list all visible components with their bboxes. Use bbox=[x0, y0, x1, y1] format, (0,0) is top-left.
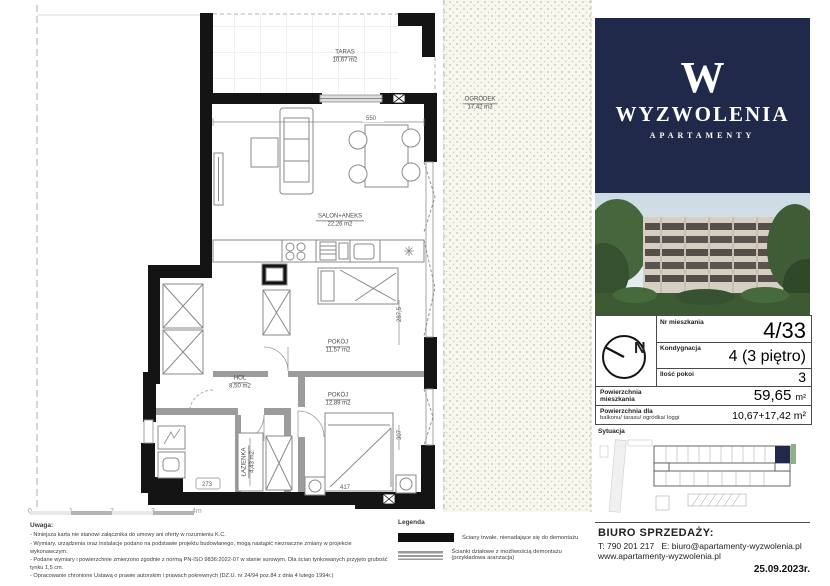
compass-icon bbox=[598, 330, 656, 384]
room-label-lazienka: ŁAZIENKA4,43 m2 bbox=[241, 445, 256, 478]
note-line: - Wymiary, urządzenia oraz instalacje po… bbox=[30, 540, 390, 556]
office-website[interactable]: www.apartamenty-wyzwolenia.pl bbox=[598, 551, 810, 561]
room-label-ogrodek: OGRÓDEK17,42 m2 bbox=[463, 96, 498, 111]
svg-text:287,5: 287,5 bbox=[397, 306, 403, 322]
area-label: Powierzchnia mieszkania bbox=[600, 389, 660, 404]
sales-office-block: BIURO SPRZEDAŻY: T: 790 201 217 E: biuro… bbox=[598, 527, 810, 561]
note-line: - Niniejsza karta nie stanowi załącznika… bbox=[30, 531, 390, 539]
office-phone: T: 790 201 217 bbox=[598, 541, 654, 551]
room-label-salon: SALON+ANEKS22,26 m2 bbox=[316, 213, 364, 228]
balcony-area-value: 10,67+17,42 m² bbox=[732, 410, 806, 422]
solid-wall-swatch bbox=[398, 533, 454, 542]
compass-north-letter: N bbox=[634, 340, 646, 358]
floor-value: 4 (3 piętro) bbox=[729, 348, 806, 366]
svg-text:273: 273 bbox=[202, 482, 213, 488]
hall-wardrobes bbox=[163, 284, 203, 374]
office-email[interactable]: E: biuro@apartamenty-wyzwolenia.pl bbox=[661, 541, 801, 551]
brand-panel: W WYZWOLENIA APARTAMENTY bbox=[595, 18, 810, 193]
floor-label: Kondygnacja bbox=[660, 345, 701, 352]
legend-item-solid: Ściany trwałe, nienadające się do demont… bbox=[398, 533, 593, 542]
brand-name: WYZWOLENIA bbox=[595, 102, 810, 127]
unit-number-value: 4/33 bbox=[763, 318, 806, 344]
legend-item-striped: Ścianki działowe z możliwością demontażu… bbox=[398, 549, 593, 561]
building-photo bbox=[595, 193, 810, 315]
legend-block: Legenda Ściany trwałe, nienadające się d… bbox=[398, 519, 593, 561]
room-label-hol: HOL8,50 m2 bbox=[229, 375, 251, 390]
room-label-pokoj1: POKÓJ11,57 m2 bbox=[326, 339, 351, 354]
living-furniture bbox=[214, 108, 420, 205]
issue-date: 25.09.2023r. bbox=[754, 564, 810, 575]
note-line: - Opracowanie chronione Ustawą o prawie … bbox=[30, 572, 390, 580]
area-value: 59,65 m² bbox=[754, 387, 806, 404]
site-plan bbox=[598, 438, 808, 518]
garden-area bbox=[443, 0, 592, 512]
notes-block: Uwaga: - Niniejsza karta nie stanowi zał… bbox=[30, 521, 390, 580]
unit-number-label: Nr mieszkania bbox=[660, 319, 704, 326]
scale-bar-labels: 01234m bbox=[28, 500, 233, 518]
situation-label: Sytuacja bbox=[598, 428, 625, 435]
rooms-count-label: Ilość pokoi bbox=[660, 371, 694, 378]
room-label-taras: TARAS10,67 m2 bbox=[332, 49, 357, 64]
balcony-area-label: Powierzchnia dla balkonu/ tarasu/ ogródk… bbox=[600, 408, 679, 421]
note-line: - Podane wymiary i powierzchnie zmierzon… bbox=[30, 556, 390, 572]
room-label-pokoj2: POKÓJ12,89 m2 bbox=[325, 392, 350, 407]
brand-subtitle: APARTAMENTY bbox=[595, 131, 810, 140]
svg-text:550: 550 bbox=[366, 116, 377, 122]
sales-office-title: BIURO SPRZEDAŻY: bbox=[598, 527, 810, 539]
notes-title: Uwaga: bbox=[30, 521, 390, 530]
highlighted-unit bbox=[775, 446, 790, 463]
floor-plan-drawing: 550 287,5 307 273 417 bbox=[0, 0, 595, 520]
brand-monogram: W bbox=[595, 56, 810, 100]
scale-bar bbox=[30, 511, 194, 515]
legend-title: Legenda bbox=[398, 519, 593, 526]
svg-text:417: 417 bbox=[340, 485, 351, 491]
rooms-count-value: 3 bbox=[798, 369, 806, 385]
apartment-card: 550 287,5 307 273 417 TARAS10,67 m2 SALO… bbox=[0, 0, 830, 586]
partition-wall-swatch bbox=[398, 551, 443, 560]
svg-text:307: 307 bbox=[397, 429, 403, 440]
unit-info-table: N Nr mieszkania 4/33 Kondygnacja 4 (3 pi… bbox=[595, 315, 812, 425]
